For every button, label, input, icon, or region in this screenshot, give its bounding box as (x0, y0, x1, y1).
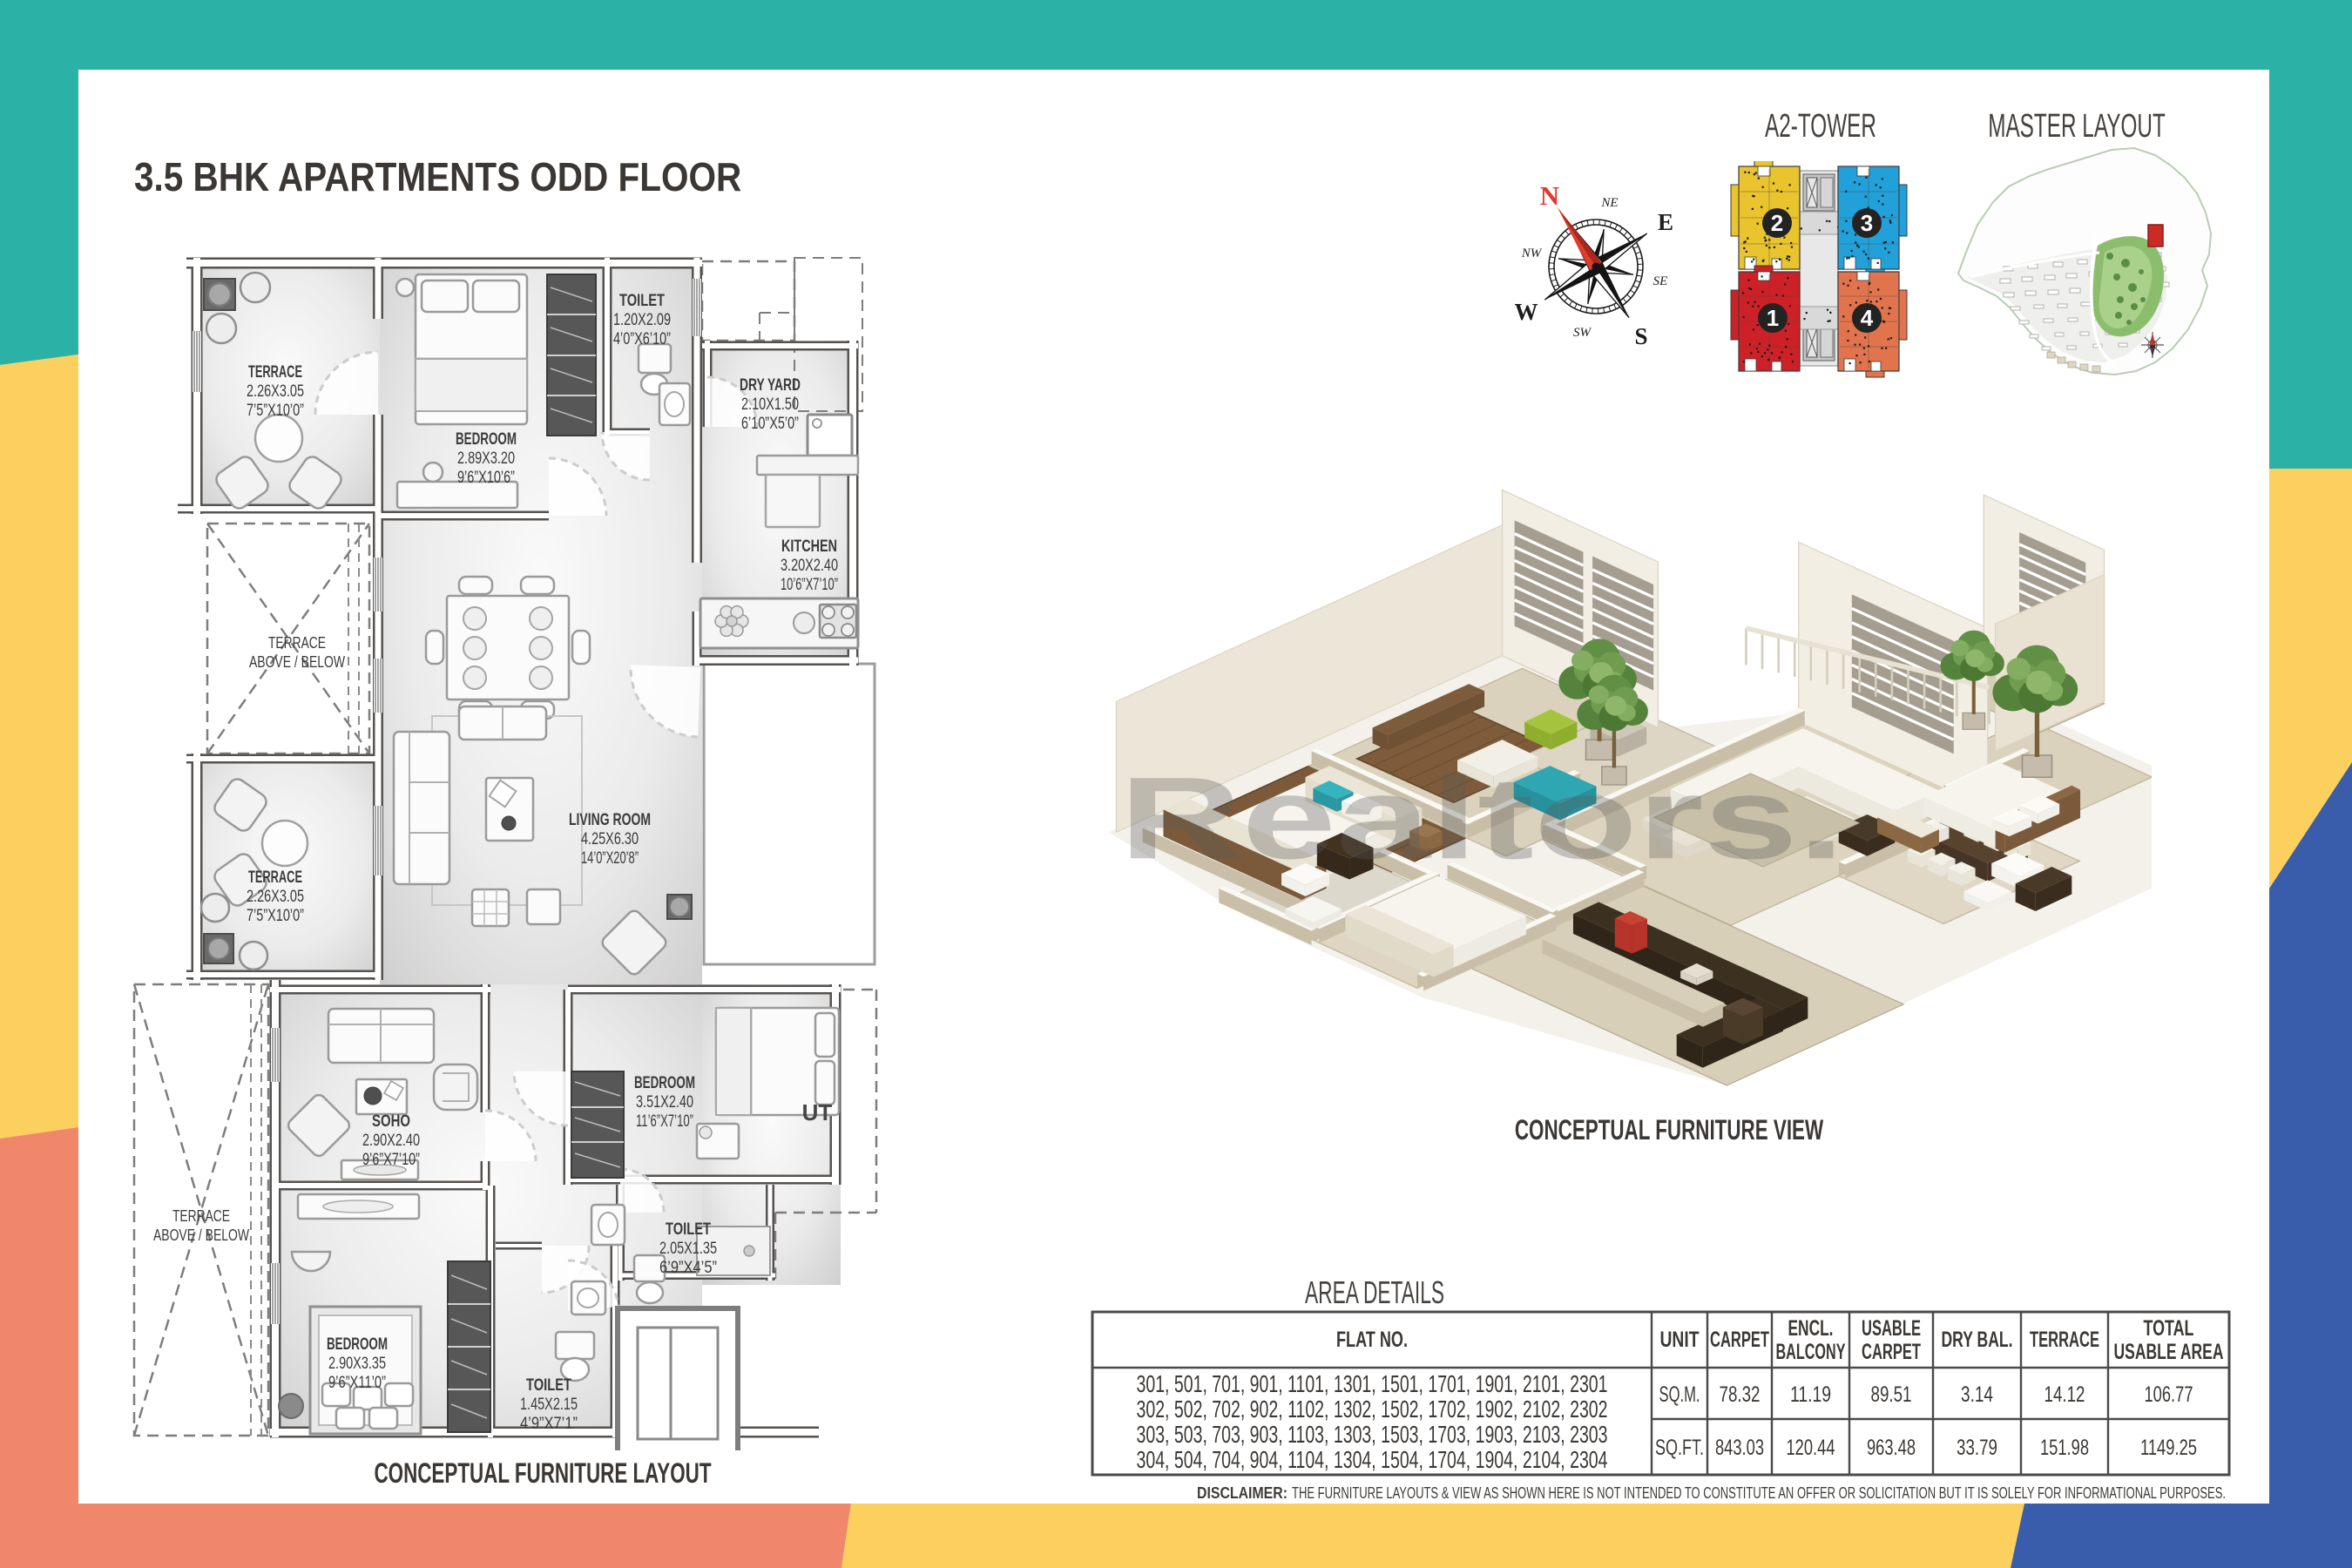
svg-text:S: S (1634, 323, 1647, 349)
svg-text:TERRACE: TERRACE (2030, 1328, 2099, 1352)
svg-text:14.12: 14.12 (2044, 1382, 2085, 1407)
svg-text:302, 502, 702, 902, 1102, 1302: 302, 502, 702, 902, 1102, 1302, 1502, 17… (1137, 1396, 1608, 1423)
svg-text:TERRACE: TERRACE (248, 363, 302, 382)
svg-text:TOILET: TOILET (619, 292, 665, 310)
svg-text:9’6”X10’6”: 9’6”X10’6” (457, 469, 515, 487)
svg-text:11.19: 11.19 (1790, 1382, 1831, 1407)
svg-text:106.77: 106.77 (2145, 1382, 2193, 1407)
svg-text:W: W (1515, 299, 1538, 325)
svg-text:2.90X3.35: 2.90X3.35 (328, 1355, 386, 1373)
svg-text:14’0”X20’8”: 14’0”X20’8” (581, 849, 639, 868)
svg-text:ABOVE / BELOW: ABOVE / BELOW (153, 1227, 249, 1244)
svg-text:USABLE AREA: USABLE AREA (2114, 1340, 2224, 1364)
svg-text:Realtors.: Realtors. (1119, 753, 1845, 883)
svg-text:SOHO: SOHO (372, 1112, 410, 1131)
svg-text:TERRACE: TERRACE (268, 634, 326, 652)
svg-text:TERRACE: TERRACE (248, 868, 302, 887)
svg-text:NW: NW (1521, 247, 1543, 260)
svg-text:BEDROOM: BEDROOM (327, 1335, 388, 1354)
svg-text:LIVING ROOM: LIVING ROOM (569, 811, 651, 829)
svg-text:3.14: 3.14 (1961, 1382, 1993, 1407)
svg-text:TERRACE: TERRACE (172, 1207, 230, 1225)
svg-text:2.26X3.05: 2.26X3.05 (247, 888, 304, 906)
svg-text:TOILET: TOILET (526, 1376, 571, 1395)
svg-text:2.10X1.50: 2.10X1.50 (741, 395, 799, 414)
svg-text:2.90X2.40: 2.90X2.40 (362, 1132, 420, 1150)
svg-text:FLAT NO.: FLAT NO. (1336, 1328, 1408, 1352)
svg-text:SQ.FT.: SQ.FT. (1655, 1436, 1704, 1460)
svg-text:843.03: 843.03 (1715, 1436, 1764, 1460)
svg-text:CARPET: CARPET (1710, 1328, 1769, 1352)
svg-text:TOILET: TOILET (666, 1220, 711, 1239)
svg-text:4’9”X7’1”: 4’9”X7’1” (520, 1415, 578, 1433)
svg-text:DRY YARD: DRY YARD (740, 376, 801, 395)
svg-text:33.79: 33.79 (1957, 1436, 1997, 1460)
svg-text:3.20X2.40: 3.20X2.40 (781, 557, 838, 575)
svg-text:9’6”X7’10”: 9’6”X7’10” (362, 1151, 420, 1169)
svg-text:303, 503, 703, 903, 1103, 1303: 303, 503, 703, 903, 1103, 1303, 1503, 17… (1137, 1421, 1608, 1448)
svg-text:TOTAL: TOTAL (2144, 1316, 2194, 1341)
svg-text:1.45X2.15: 1.45X2.15 (520, 1396, 578, 1414)
svg-text:89.51: 89.51 (1871, 1382, 1912, 1407)
svg-text:ABOVE / BELOW: ABOVE / BELOW (249, 653, 345, 671)
svg-text:AREA DETAILS: AREA DETAILS (1305, 1274, 1444, 1310)
svg-text:BALCONY: BALCONY (1776, 1340, 1846, 1364)
svg-text:9’6”X11’0”: 9’6”X11’0” (328, 1374, 386, 1392)
svg-text:963.48: 963.48 (1867, 1436, 1916, 1460)
svg-text:DRY BAL.: DRY BAL. (1942, 1328, 2013, 1352)
svg-text:4.25X6.30: 4.25X6.30 (581, 830, 639, 848)
svg-text:DISCLAIMER:THE FURNITURE LAYOU: DISCLAIMER:THE FURNITURE LAYOUTS & VIEW … (1197, 1484, 2226, 1502)
svg-text:UT: UT (802, 1099, 833, 1125)
svg-text:2.26X3.05: 2.26X3.05 (247, 382, 304, 401)
svg-text:2.05X1.35: 2.05X1.35 (659, 1240, 717, 1258)
svg-text:6’10”X5’0”: 6’10”X5’0” (741, 415, 799, 433)
svg-text:CARPET: CARPET (1862, 1340, 1921, 1364)
svg-text:1.20X2.09: 1.20X2.09 (613, 311, 671, 329)
svg-text:7’5”X10’0”: 7’5”X10’0” (247, 907, 304, 925)
svg-text:6’9”X4’5”: 6’9”X4’5” (659, 1259, 717, 1277)
svg-text:301, 501, 701, 901, 1101, 1301: 301, 501, 701, 901, 1101, 1301, 1501, 17… (1137, 1370, 1608, 1397)
svg-text:2.89X3.20: 2.89X3.20 (457, 449, 515, 468)
svg-text:3: 3 (1861, 210, 1873, 236)
svg-text:ENCL.: ENCL. (1788, 1316, 1834, 1341)
svg-text:304, 504, 704, 904, 1104, 1304: 304, 504, 704, 904, 1104, 1304, 1504, 17… (1137, 1446, 1608, 1473)
svg-text:11’6”X7’10”: 11’6”X7’10” (636, 1112, 693, 1131)
svg-text:UNIT: UNIT (1660, 1328, 1700, 1352)
svg-text:SW: SW (1573, 326, 1592, 340)
svg-text:7’5”X10’0”: 7’5”X10’0” (247, 402, 304, 420)
svg-text:USABLE: USABLE (1862, 1316, 1921, 1341)
svg-text:4: 4 (1861, 305, 1874, 331)
svg-text:NE: NE (1600, 196, 1618, 210)
svg-text:SQ.M.: SQ.M. (1659, 1382, 1700, 1407)
svg-text:1149.25: 1149.25 (2140, 1436, 2197, 1460)
svg-text:BEDROOM: BEDROOM (456, 430, 517, 449)
svg-text:3.51X2.40: 3.51X2.40 (636, 1093, 693, 1112)
svg-text:78.32: 78.32 (1720, 1382, 1761, 1407)
svg-text:N: N (1540, 183, 1559, 211)
svg-text:1: 1 (1767, 305, 1779, 331)
svg-text:BEDROOM: BEDROOM (634, 1074, 695, 1092)
svg-text:E: E (1658, 209, 1673, 235)
svg-text:4’0”X6’10”: 4’0”X6’10” (613, 330, 671, 348)
svg-text:SE: SE (1653, 274, 1668, 288)
svg-text:KITCHEN: KITCHEN (781, 537, 837, 556)
svg-text:120.44: 120.44 (1787, 1436, 1835, 1460)
svg-text:151.98: 151.98 (2040, 1436, 2089, 1460)
svg-text:2: 2 (1771, 210, 1783, 236)
svg-text:10’6”X7’10”: 10’6”X7’10” (781, 576, 838, 594)
